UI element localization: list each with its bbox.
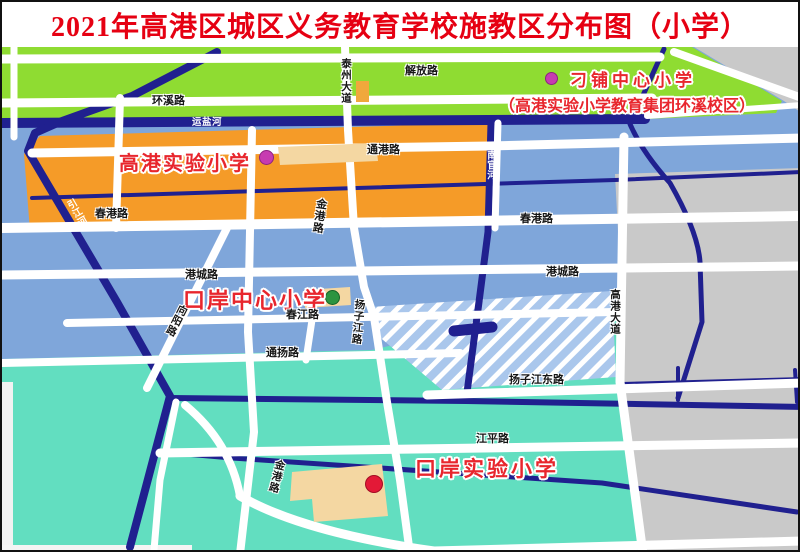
road-label-chunjianglu: 春江路 xyxy=(286,306,319,322)
river-label-nanguanhe: 南官河 xyxy=(483,150,497,180)
road-north xyxy=(2,57,660,59)
road-label-gangchenglu-east: 港城路 xyxy=(546,263,579,279)
page-title: 2021年高港区城区义务教育学校施教区分布图（小学） xyxy=(51,5,749,45)
school-district-map: 2021年高港区城区义务教育学校施教区分布图（小学） 刁铺中心小学 （高港实验小… xyxy=(0,0,800,552)
road-label-yangzijiang-east: 扬子江东路 xyxy=(509,371,564,387)
map-title-bar: 2021年高港区城区义务教育学校施教区分布图（小学） xyxy=(2,2,798,47)
marker-diaopu-center-school xyxy=(545,72,558,85)
road-label-tongyanglu: 通扬路 xyxy=(266,344,299,360)
road-label-chunganglu-east: 春港路 xyxy=(520,210,553,226)
river-junction xyxy=(454,327,492,331)
map-margin-left xyxy=(2,382,13,552)
marker-kouan-center-school xyxy=(325,290,340,305)
school-label-diaopu-center: 刁铺中心小学 xyxy=(570,66,696,91)
road-label-gangchenglu-west: 港城路 xyxy=(185,266,218,282)
river-label-yunyanhe: 运盐河 xyxy=(192,114,222,128)
school-label-diaopu-center-subtitle: （高港实验小学教育集团环溪校区） xyxy=(499,92,755,116)
region-gray-east xyxy=(615,168,800,552)
road-label-tongganglu: 通港路 xyxy=(367,141,400,157)
marker-kouan-shiyan-school xyxy=(365,475,383,493)
river-yunyan xyxy=(2,119,645,123)
road-label-gaogang-avenue: 高港大道 xyxy=(608,289,623,335)
road-label-chunganglu-west: 春港路 xyxy=(95,205,128,221)
road-label-taizhou-avenue: 泰州大道 xyxy=(339,58,354,104)
road-label-huanxilu: 环溪路 xyxy=(152,92,185,108)
road-label-jiangpinglu: 江平路 xyxy=(476,430,509,446)
school-label-kouan-shiyan: 口岸实验小学 xyxy=(415,453,559,483)
marker-gaogang-shiyan-school xyxy=(259,150,274,165)
road-label-jiefanglu: 解放路 xyxy=(405,62,438,78)
building-small xyxy=(356,81,369,102)
map-margin-bottom xyxy=(2,545,192,552)
school-label-gaogang-shiyan: 高港实验小学 xyxy=(119,147,251,176)
